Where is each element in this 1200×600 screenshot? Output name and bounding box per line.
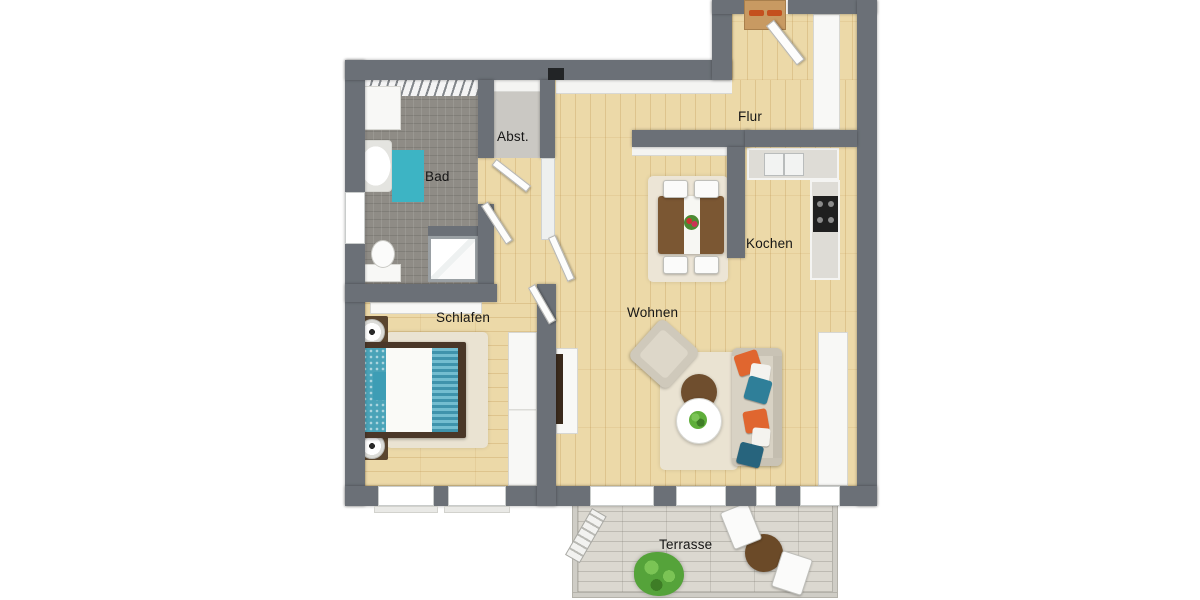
bed-duvet [386,348,432,432]
storage-wall-face [494,80,540,92]
wall-bathroom-bottom [345,284,497,302]
room-label-abst: Abst. [497,129,529,144]
window-living [800,486,840,506]
wall-hall-dining [632,130,750,147]
kitchen-sink-divider [783,154,785,175]
window-sill [374,506,438,513]
washing-machine [363,86,401,130]
wall-object [548,68,564,80]
entry-closet [813,14,840,130]
shower [428,236,478,282]
tv [556,354,563,424]
room-label-wohnen: Wohnen [627,305,678,320]
bed-runner [432,348,458,432]
floor-plan: Bad Abst. Flur Kochen Schlafen Wohnen Te… [0,0,1200,600]
terrace-door [590,486,654,506]
wall-bathroom-right [478,80,494,158]
stove-burners [817,201,823,207]
room-label-bad: Bad [425,169,450,184]
room-label-flur: Flur [738,109,762,124]
wall-exterior-top [345,60,732,80]
window-sill [444,506,510,513]
wardrobe [508,332,537,486]
terrace-railing-right [832,504,838,598]
dining-chair [694,180,719,198]
dining-chair [694,256,719,274]
wall-storage-right [540,80,555,158]
hall-wall-face [556,80,732,94]
sideboard [818,332,848,486]
wall-exterior-left [345,60,365,506]
wall-exterior-right [857,0,877,506]
dining-chair [663,256,688,274]
flower-centerpiece [684,215,699,230]
wall-entry-top [712,0,744,14]
shower-wall [428,226,478,236]
room-label-schlafen: Schlafen [436,310,490,325]
toilet-bowl [371,240,395,268]
window-bedroom [448,486,506,506]
room-label-terrasse: Terrasse [659,537,712,552]
dining-chair [663,180,688,198]
window-living [756,486,776,506]
window-bathroom [345,192,365,244]
wall-kitchen-stub [727,147,745,258]
wall-hall-partition [541,158,555,240]
bath-mat [392,150,424,202]
room-label-kochen: Kochen [746,236,793,251]
shoes [767,10,782,16]
window-bedroom [378,486,434,506]
terrace-plant [634,552,684,596]
shoes [749,10,764,16]
window-living [676,486,726,506]
potted-plant [689,411,707,429]
wall-kitchen-top [745,130,857,147]
sofa-backrest [773,348,782,466]
